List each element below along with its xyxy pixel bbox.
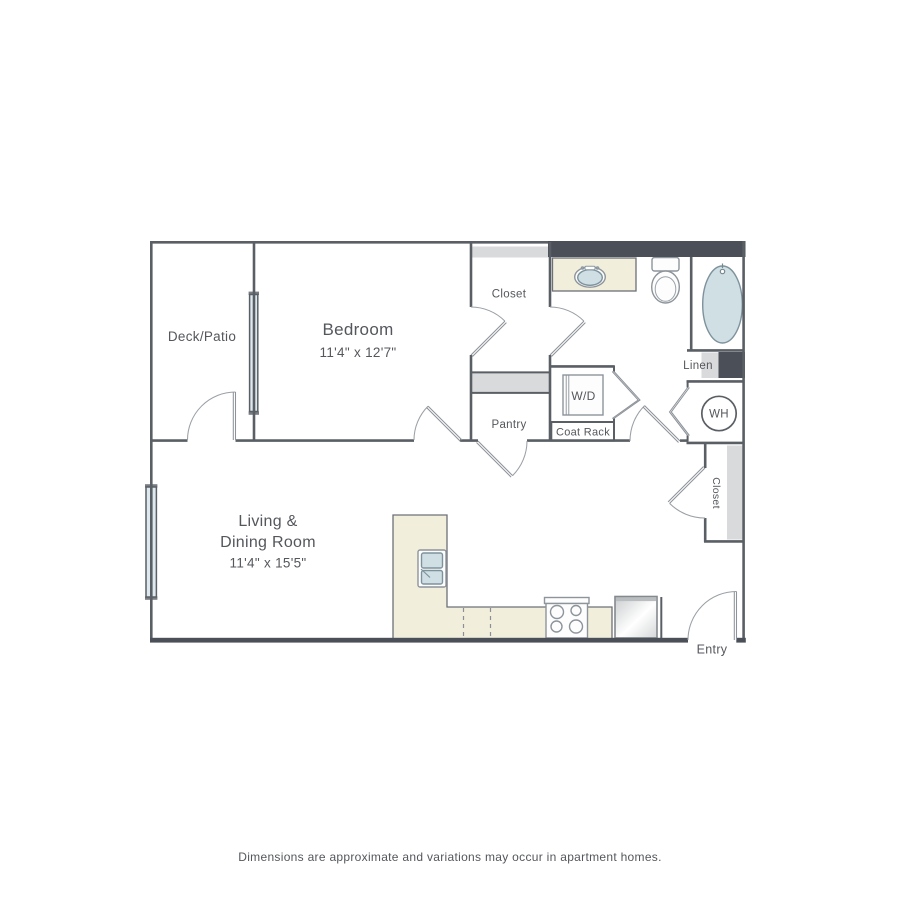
water-heater-bifold-door xyxy=(670,388,690,436)
stove-icon xyxy=(545,598,590,639)
entry-closet-door-swing xyxy=(668,467,705,519)
wall-segment-thick xyxy=(548,241,746,257)
closet-door-swing xyxy=(471,307,506,357)
bedroom-label: Bedroom xyxy=(322,320,393,339)
bathroom-sink-icon xyxy=(575,266,606,287)
linen-wall-block xyxy=(719,352,746,378)
bathroom xyxy=(575,258,743,344)
living-dining-dimensions: 11'4" x 15'5" xyxy=(230,556,307,571)
pantry-label: Pantry xyxy=(491,419,526,431)
closet-pantry-shelf xyxy=(472,373,549,393)
toilet-icon xyxy=(652,258,680,304)
deck-door-swing xyxy=(188,392,236,440)
doors xyxy=(188,307,737,640)
living-dining-label-line2: Dining Room xyxy=(220,534,316,551)
bedroom-dimensions: 11'4" x 12'7" xyxy=(320,345,397,360)
wall-segment-thick xyxy=(736,638,746,643)
pantry-door-swing xyxy=(477,441,528,477)
bedroom-closet-label: Closet xyxy=(492,289,527,301)
deck-patio-label: Deck/Patio xyxy=(168,329,236,344)
entry-closet-shelf xyxy=(727,446,743,540)
bedroom-closet-shelf xyxy=(472,247,549,258)
coat-rack-label: Coat Rack xyxy=(556,427,610,439)
wall-segment-thick xyxy=(150,638,688,643)
floor-plan: Deck/Patio Bedroom 11'4" x 12'7" Closet … xyxy=(0,0,900,900)
washer-dryer-label: W/D xyxy=(571,389,595,403)
bathtub-icon xyxy=(703,264,743,344)
entry-door-swing xyxy=(688,592,737,641)
living-dining-label-line1: Living & xyxy=(238,513,297,530)
entry-closet-label: Closet xyxy=(710,477,722,509)
water-heater-label: WH xyxy=(709,409,729,421)
washer-dryer-bifold-door xyxy=(612,372,640,419)
entry-label: Entry xyxy=(697,643,728,657)
refrigerator-icon xyxy=(615,597,657,639)
linen-label: Linen xyxy=(683,360,713,372)
walls xyxy=(150,241,746,643)
bedroom-door-swing xyxy=(414,406,462,441)
bathroom-door-swing xyxy=(550,307,585,357)
kitchen-sink-icon xyxy=(418,550,446,587)
disclaimer-text: Dimensions are approximate and variation… xyxy=(238,850,662,864)
floor-plan-page: Deck/Patio Bedroom 11'4" x 12'7" Closet … xyxy=(0,0,900,900)
